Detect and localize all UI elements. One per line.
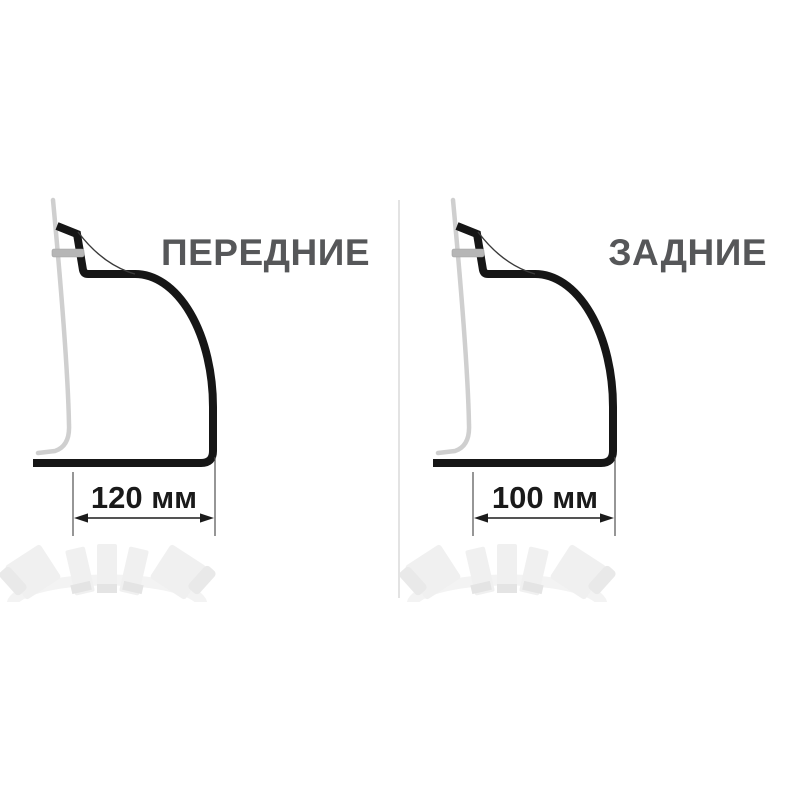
figure-title: ПЕРЕДНИЕ xyxy=(161,232,370,273)
dimension-arrowhead-left xyxy=(74,513,88,522)
rear-fender-figure: 100 мм ЗАДНИЕ xyxy=(400,190,800,602)
front-figure-drawing: 120 мм ПЕРЕДНИЕ xyxy=(0,190,400,602)
dimension-arrowhead-left xyxy=(474,513,488,522)
front-fender-figure: 120 мм ПЕРЕДНИЕ xyxy=(0,190,400,602)
car-body-panel-line xyxy=(38,200,69,453)
rear-figure-drawing: 100 мм ЗАДНИЕ xyxy=(400,190,800,602)
diagram-page: 120 мм ПЕРЕДНИЕ xyxy=(0,0,800,800)
mounting-clip xyxy=(452,249,484,257)
mounting-clip xyxy=(52,249,84,257)
car-body-panel-line xyxy=(438,200,469,453)
dimension-label: 100 мм xyxy=(492,480,598,515)
faded-arch-photo xyxy=(0,544,217,602)
dimension-arrowhead-right xyxy=(200,513,214,522)
dimension-label: 120 мм xyxy=(91,480,197,515)
arch-segment-tip-center xyxy=(97,584,117,593)
figure-title: ЗАДНИЕ xyxy=(608,232,767,273)
faded-arch-photo xyxy=(400,544,617,602)
arch-segment-tip-center xyxy=(497,584,517,593)
dimension-callout: 120 мм xyxy=(73,457,215,536)
dimension-arrowhead-right xyxy=(600,513,614,522)
dimension-callout: 100 мм xyxy=(473,457,615,536)
